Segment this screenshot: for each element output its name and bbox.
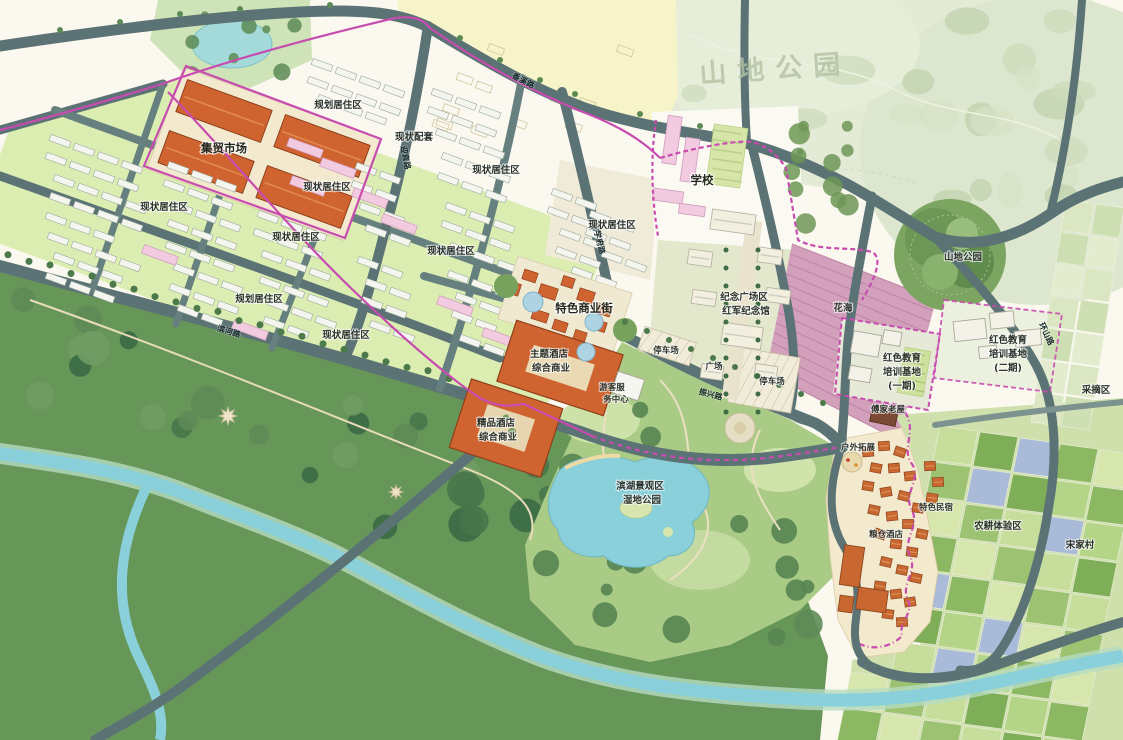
zone-label: 现状居住区: [322, 329, 370, 341]
zone-label: 培训基地: [883, 366, 922, 378]
zone-label: 傅家老屋: [870, 404, 906, 415]
zone-label: 现状居住区: [272, 231, 320, 243]
zone-label: 户外拓展: [840, 442, 876, 453]
zone-label: 精品酒店: [477, 417, 516, 429]
zone-label: 规划居住区: [314, 99, 362, 111]
zone-label: (二期): [994, 362, 1022, 374]
zone-label: 现状配套: [395, 131, 434, 143]
zone-label: 纪念广场区: [720, 291, 768, 303]
zone-label: 现状居住区: [140, 201, 188, 213]
zone-label: 现状居住区: [588, 219, 636, 231]
zone-label: 现状居住区: [427, 245, 475, 257]
zone-label: 花海: [833, 302, 853, 314]
zone-label: 山地公园: [944, 251, 982, 263]
zone-label: 主题酒店: [530, 348, 569, 360]
zone-label: 学校: [691, 173, 714, 187]
zone-label: 培训基地: [989, 348, 1028, 360]
zone-label: 游客服: [599, 382, 625, 393]
zone-label: 广场: [705, 361, 723, 372]
zone-label: 综合商业: [479, 431, 518, 443]
zone-label: 湿地公园: [623, 494, 661, 506]
master-plan-map: 集贸市场规划居住区现状配套现状居住区现状居住区现状居住区现状居住区现状居住区规划…: [0, 0, 1123, 740]
zone-label: 红色教育: [989, 334, 1028, 346]
zone-label: 采摘区: [1081, 384, 1111, 396]
zone-label: 停车场: [759, 376, 785, 387]
zone-label: 现状居住区: [472, 164, 520, 176]
zone-label: (一期): [888, 380, 916, 392]
zone-label: 红军纪念馆: [722, 305, 770, 317]
zone-label: 务中心: [603, 394, 629, 405]
zone-label: 红色教育: [883, 352, 922, 364]
zone-label: 农耕体验区: [973, 520, 1022, 532]
zone-label: 滨湖景观区: [616, 480, 664, 492]
zone-label: 粮仓酒店: [869, 529, 904, 540]
zone-label: 现状居住区: [303, 181, 351, 193]
zone-label: 特色商业街: [555, 301, 613, 315]
zone-label: 综合商业: [532, 362, 571, 374]
plan-map-stage: 集贸市场规划居住区现状配套现状居住区现状居住区现状居住区现状居住区现状居住区规划…: [0, 0, 1123, 740]
zone-label: 规划居住区: [235, 293, 283, 305]
zone-label: 宋家村: [1065, 539, 1095, 551]
zone-label: 停车场: [653, 345, 679, 356]
zone-label: 特色民宿: [919, 502, 954, 513]
zone-label: 集贸市场: [200, 141, 247, 155]
